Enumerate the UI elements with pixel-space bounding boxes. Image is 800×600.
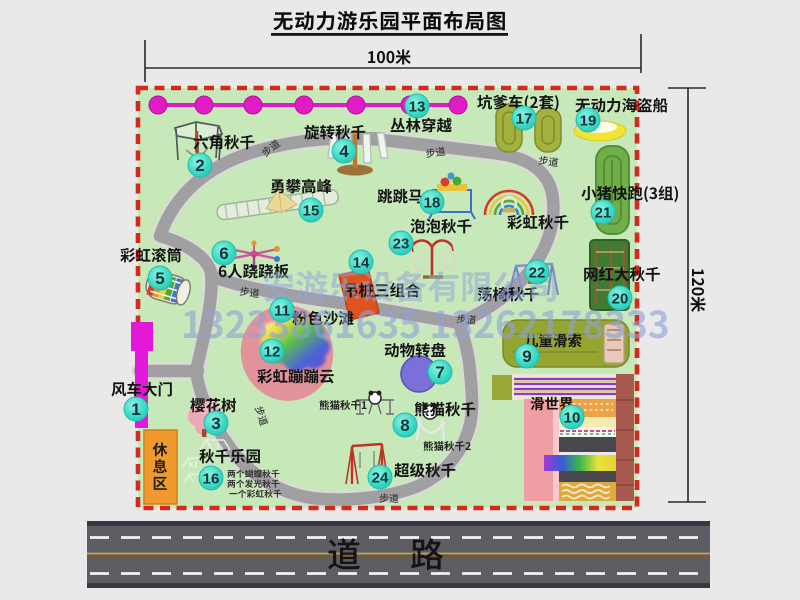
svg-text:1: 1 bbox=[131, 400, 140, 419]
svg-text:7: 7 bbox=[435, 363, 444, 382]
svg-text:23: 23 bbox=[393, 236, 410, 253]
svg-text:3: 3 bbox=[211, 414, 220, 433]
svg-text:2: 2 bbox=[195, 156, 204, 175]
svg-text:20: 20 bbox=[612, 291, 629, 308]
svg-text:14: 14 bbox=[353, 255, 370, 272]
svg-text:8: 8 bbox=[400, 416, 409, 435]
svg-text:24: 24 bbox=[372, 470, 389, 487]
svg-text:12: 12 bbox=[264, 344, 281, 361]
svg-text:9: 9 bbox=[522, 347, 531, 366]
svg-text:4: 4 bbox=[339, 142, 349, 161]
svg-text:13: 13 bbox=[409, 99, 426, 116]
svg-text:18: 18 bbox=[424, 195, 441, 212]
svg-text:15: 15 bbox=[303, 203, 320, 220]
svg-text:10: 10 bbox=[564, 410, 581, 427]
svg-text:22: 22 bbox=[529, 265, 546, 282]
svg-text:17: 17 bbox=[516, 111, 533, 128]
svg-text:16: 16 bbox=[203, 471, 220, 488]
svg-text:19: 19 bbox=[580, 113, 597, 130]
svg-text:6: 6 bbox=[219, 244, 228, 263]
svg-text:5: 5 bbox=[155, 269, 164, 288]
svg-text:21: 21 bbox=[595, 205, 612, 222]
svg-text:11: 11 bbox=[274, 303, 290, 320]
